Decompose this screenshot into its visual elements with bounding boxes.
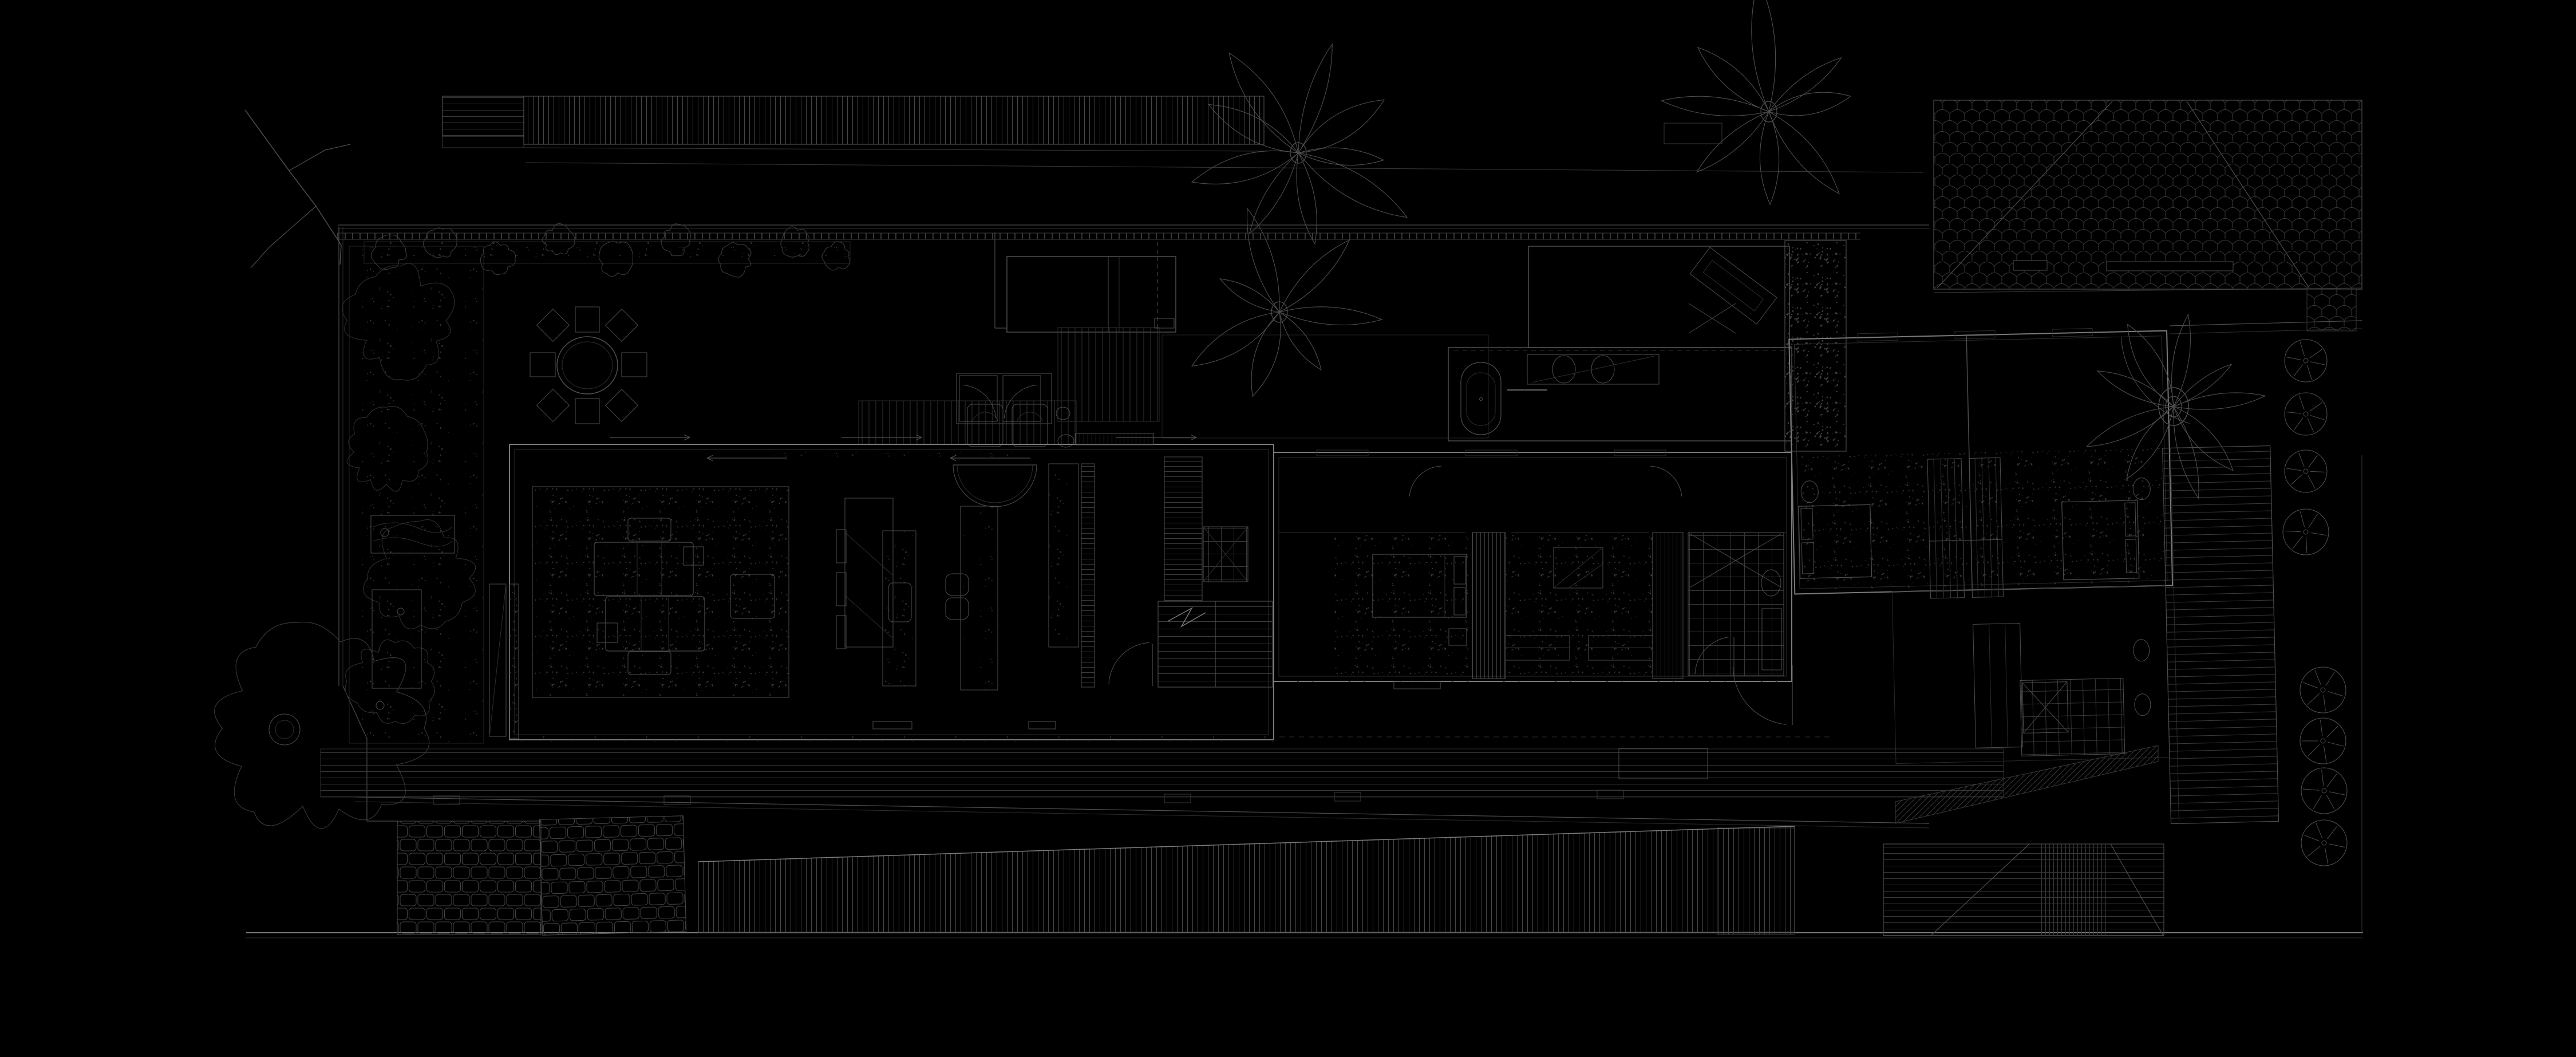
site-plan — [0, 0, 2576, 1057]
neighbour-tile-patch — [2307, 289, 2356, 331]
neighbour-roof-south-gable — [2038, 844, 2107, 936]
neighbour-roof-south — [1883, 844, 2164, 936]
west-stone-wall — [509, 584, 519, 739]
living-wall-base — [509, 736, 1274, 744]
bookshelf — [1081, 464, 1095, 687]
stair-upper-flight — [1164, 457, 1202, 601]
window-seat-column-2 — [1969, 457, 2003, 597]
neighbour-slat-deck — [524, 96, 1264, 144]
small-kitchen-tiles — [2020, 678, 2125, 756]
window-seat-column-1 — [1927, 459, 1964, 598]
wardrobe-1 — [1472, 533, 1506, 679]
wardrobe-2 — [1653, 533, 1683, 679]
ensuite-tiled-floor — [1688, 533, 1784, 676]
dish-rack — [1076, 433, 1153, 445]
bedroom-wall-base — [1274, 676, 1792, 683]
neighbour-tile-roof — [1934, 100, 2362, 289]
tall-cabinet — [1049, 464, 1078, 647]
east-veranda-deck — [2163, 446, 2279, 824]
cobble-paving-left — [397, 821, 541, 934]
floor-plan-svg — [0, 0, 2576, 1057]
kitchen-island — [883, 531, 916, 686]
bedroom2-carpet — [1506, 535, 1653, 676]
terrace-decking — [321, 749, 2004, 797]
roof-skylight-1 — [2013, 261, 2047, 270]
roof-skylight-2 — [2107, 262, 2233, 271]
bedroom1-carpet — [1334, 535, 1468, 676]
west-planting-bed — [349, 246, 484, 743]
stone-island — [961, 506, 998, 690]
cobble-paving-right — [539, 816, 686, 936]
entry-walkway-planks — [1058, 328, 1159, 421]
neighbour-deck-steps — [442, 96, 524, 136]
kitchen-wall-base — [773, 450, 1019, 459]
